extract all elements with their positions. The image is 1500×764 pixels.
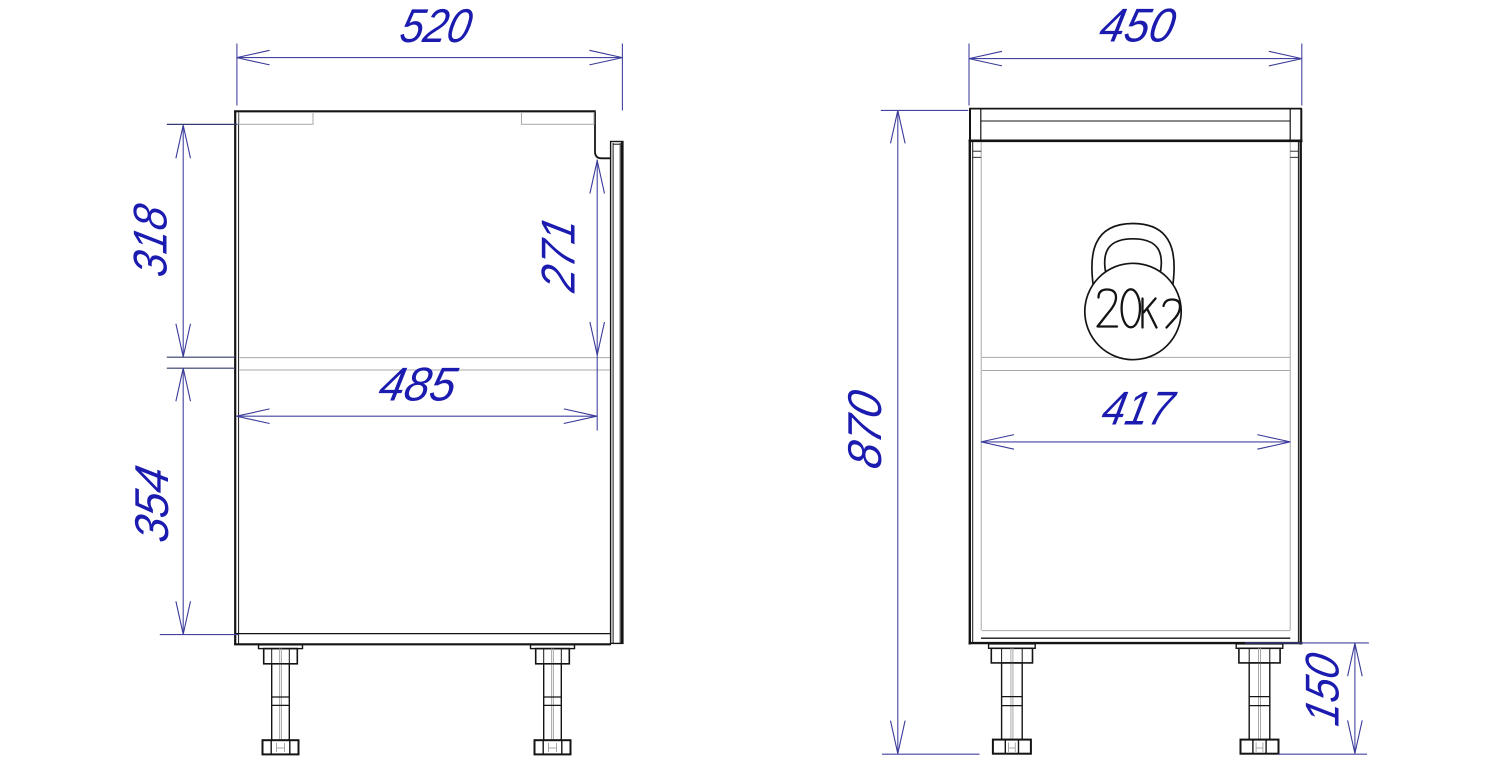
svg-text:485: 485 xyxy=(374,359,461,411)
svg-text:870: 870 xyxy=(840,386,892,473)
svg-text:271: 271 xyxy=(533,213,585,297)
svg-text:450: 450 xyxy=(1095,0,1180,52)
svg-text:354: 354 xyxy=(127,461,179,546)
svg-text:150: 150 xyxy=(1297,648,1349,729)
svg-text:520: 520 xyxy=(396,0,477,52)
svg-text:417: 417 xyxy=(1097,383,1180,435)
svg-text:318: 318 xyxy=(125,200,177,281)
